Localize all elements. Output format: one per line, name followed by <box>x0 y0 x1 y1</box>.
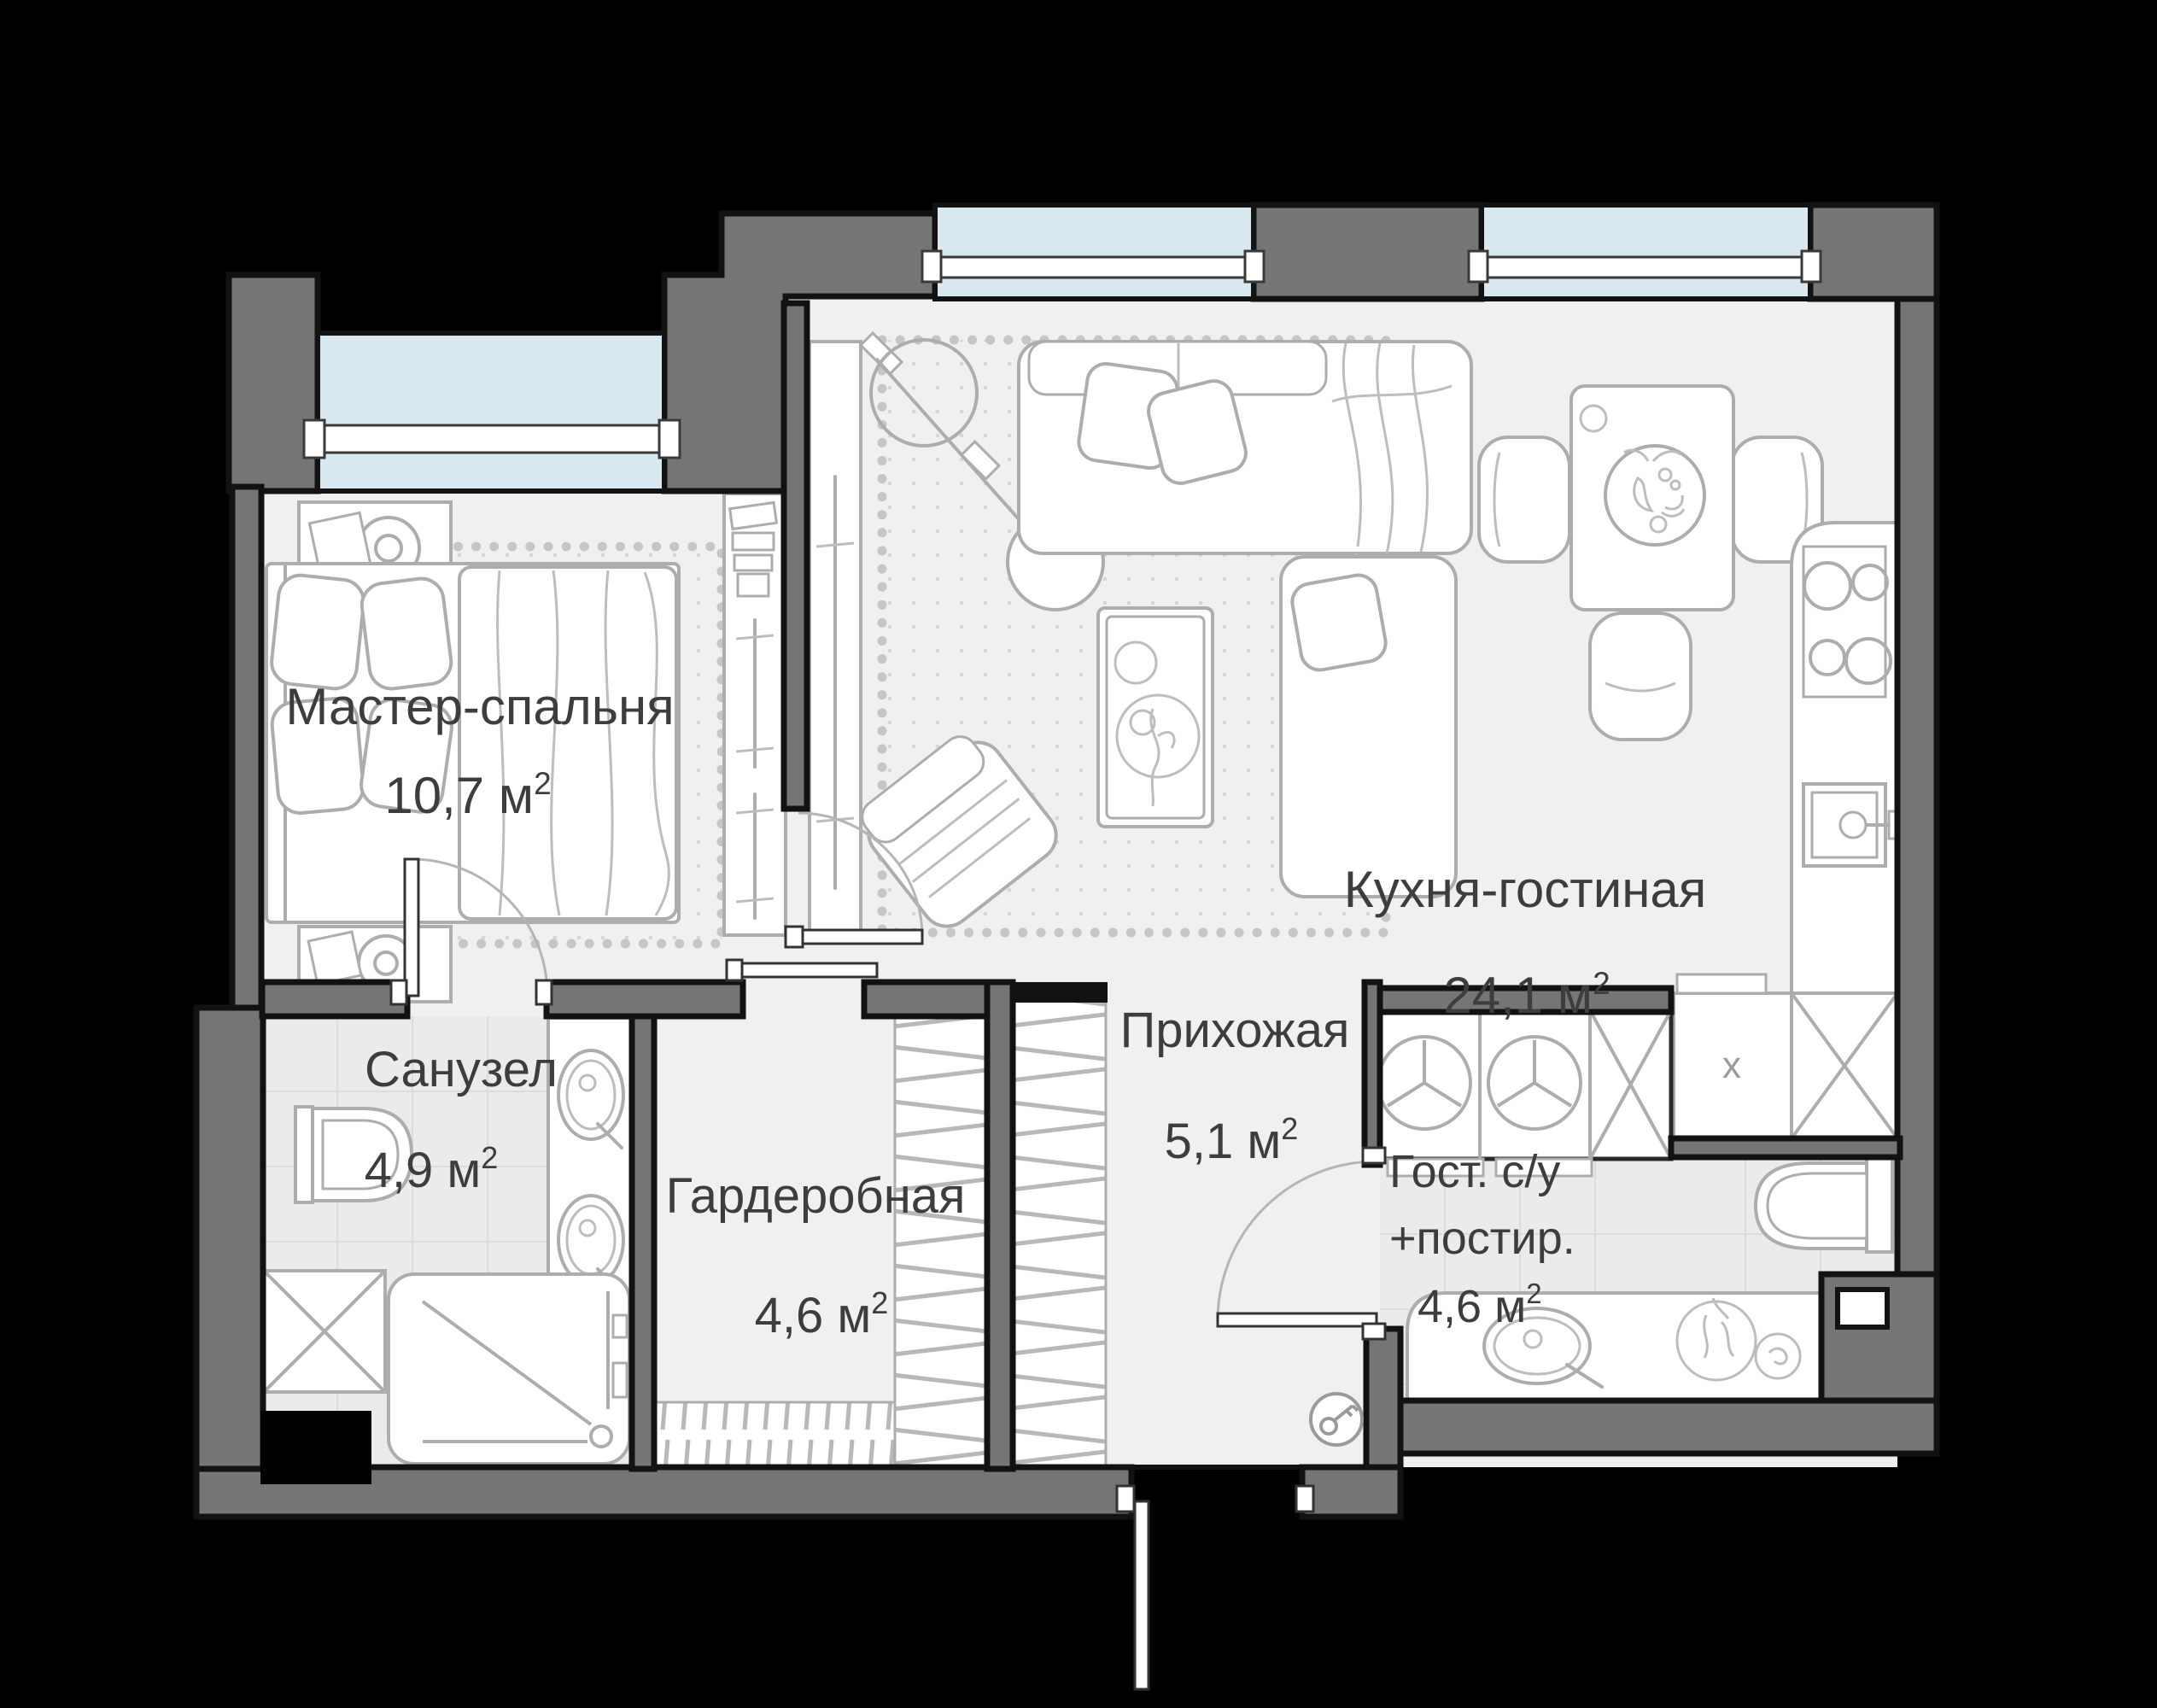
stove-burners-icon <box>1803 547 1891 697</box>
room-area-hallway: 5,1 м2 <box>1165 1111 1299 1169</box>
window <box>304 333 680 491</box>
floor-plan: x <box>0 0 2157 1708</box>
wall-partition <box>784 303 807 809</box>
room-area-kitchen-living: 24,1 м2 <box>1443 966 1610 1024</box>
sink-icon <box>1803 784 1897 866</box>
kitchen-cabinet: x <box>1674 974 1792 1138</box>
hallway-closet <box>1012 1001 1106 1467</box>
bed <box>266 564 679 922</box>
room-label-hallway: Прихожая <box>1120 1003 1350 1058</box>
wall <box>632 1016 654 1469</box>
room-area-wardrobe: 4,6 м2 <box>755 1285 889 1343</box>
storage-box <box>264 1271 385 1392</box>
wall-right <box>1897 299 1937 1401</box>
coffee-table <box>1098 608 1213 827</box>
window <box>1469 205 1821 299</box>
room-label-guest-bathroom-line2: +постир. <box>1389 1213 1575 1264</box>
key-icon <box>1311 1394 1362 1445</box>
chair <box>1479 437 1570 562</box>
shower-icon <box>389 1274 629 1464</box>
room-label-wardrobe: Гардеробная <box>666 1168 966 1224</box>
wall <box>262 982 407 1016</box>
room-label-bathroom: Санузел <box>365 1042 558 1097</box>
wall <box>987 982 1013 1469</box>
wardrobe-door <box>727 960 877 980</box>
closet-top-cap <box>1012 982 1108 1003</box>
wall <box>1365 982 1380 1165</box>
kitchen-cabinet-x <box>1792 993 1897 1138</box>
sofa-chaise <box>1281 557 1456 897</box>
wall-bottom <box>1302 1467 1400 1517</box>
wall-corner <box>1810 205 1937 299</box>
wall-bottom <box>1400 1401 1937 1454</box>
room-label-kitchen-living: Кухня-гостиная <box>1344 861 1706 918</box>
room-area-guest-bathroom: 4,6 м2 <box>1418 1278 1542 1332</box>
tv-unit <box>810 342 861 935</box>
room-label-guest-bathroom: Гост. с/у <box>1389 1146 1560 1197</box>
wall-left <box>196 1008 263 1469</box>
chair <box>1590 613 1691 740</box>
cabinet-marker: x <box>1722 1044 1741 1086</box>
window <box>922 205 1264 299</box>
wall-left <box>232 487 261 1008</box>
dining-table <box>1571 386 1733 610</box>
wall <box>864 982 989 1016</box>
shaft <box>1838 1290 1887 1327</box>
room-area-master-bedroom: 10,7 м2 <box>384 766 551 824</box>
wall-pier <box>1254 205 1482 299</box>
bedroom-closet <box>724 494 786 935</box>
room-area-bathroom: 4,9 м2 <box>365 1140 499 1198</box>
wall <box>547 982 743 1016</box>
room-label-master-bedroom: Мастер-спальня <box>285 678 674 735</box>
shaft <box>260 1411 371 1484</box>
wall <box>1366 1329 1400 1469</box>
toilet-icon <box>1756 1155 1892 1252</box>
wall <box>1671 1138 1900 1157</box>
